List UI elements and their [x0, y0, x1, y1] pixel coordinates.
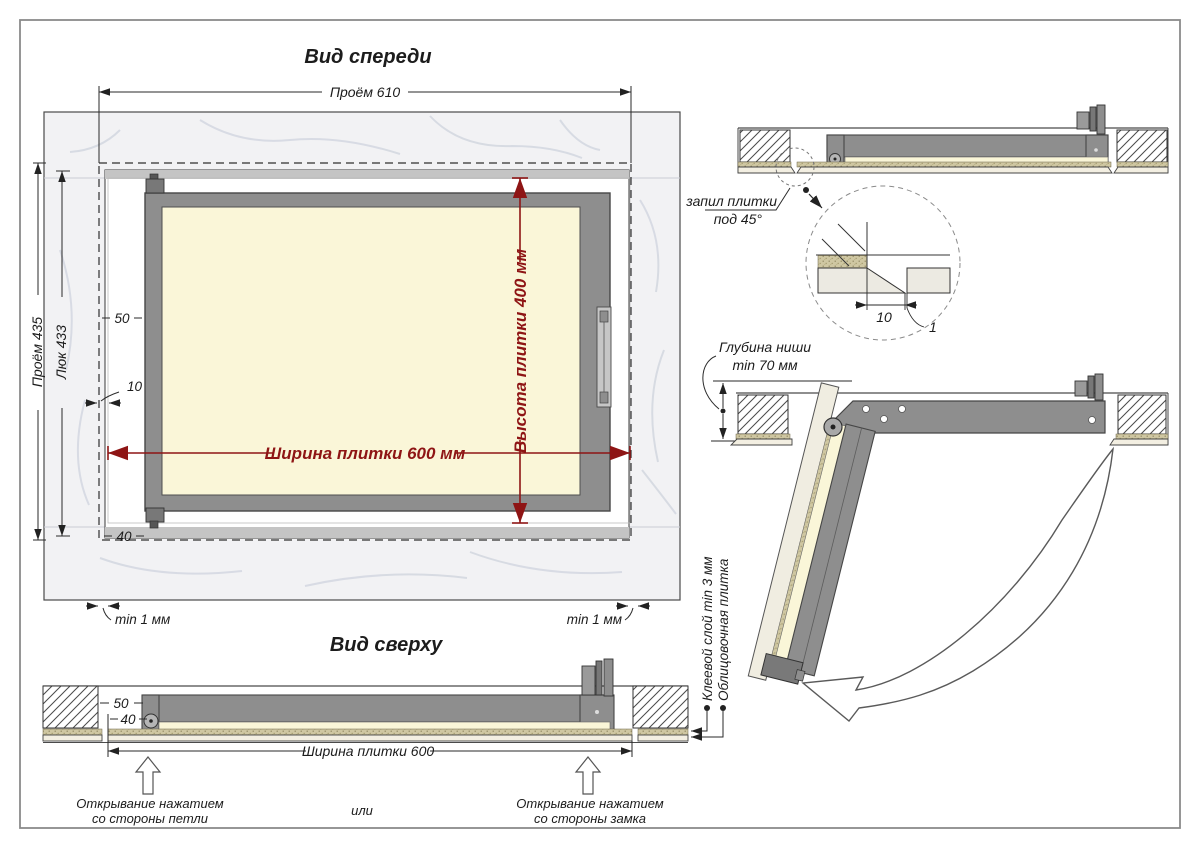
section-tile-layer: [738, 167, 1168, 173]
dim-tile-width-label: Ширина плитки 600 мм: [265, 444, 466, 463]
wall-section-right: [633, 686, 688, 728]
open-lock-icon: [1075, 374, 1103, 400]
door-profile: [143, 695, 613, 722]
open-wall-left: [738, 395, 788, 434]
section-wall-right: [1117, 130, 1167, 162]
tile-cut-label-1: запил плитки: [685, 193, 777, 209]
dim-tile-height-label: Высота плитки 400 мм: [511, 248, 530, 453]
closed-section-view: запил плитки под 45° 10 1: [685, 105, 1168, 340]
open-wall-tile-right: [1110, 439, 1168, 445]
adhesive-layer-label: Клеевой слой min 3 мм: [700, 556, 715, 701]
dim-opening-width-label: Проём 610: [330, 84, 401, 100]
niche-shadow-bottom: [105, 527, 629, 538]
gap-right-label: min 1 мм: [567, 612, 622, 627]
dim-50-label: 50: [114, 311, 130, 326]
niche-depth-label-1: Глубина ниши: [719, 339, 811, 355]
layer-callout-leaders: [691, 711, 723, 737]
front-view: Проём 610 Проём 435 Люк 433 50 10: [29, 46, 680, 627]
dim-opening-height-label: Проём 435: [29, 317, 45, 388]
open-hinge-label-2: со стороны петли: [92, 811, 208, 826]
open-lock-label-1: Открывание нажатием: [516, 796, 664, 811]
open-wall-right: [1118, 395, 1166, 434]
open-hinge-label-1: Открывание нажатием: [76, 796, 224, 811]
top-view-title: Вид сверху: [330, 634, 443, 656]
latch-handle-icon: [597, 307, 611, 407]
dim-10-label: 10: [127, 379, 143, 394]
top-view: Вид сверху 50: [43, 634, 688, 826]
section-adhesive-layer: [738, 162, 1168, 167]
facing-tile-label: Облицовочная плитка: [716, 558, 731, 701]
detail-reference-arrow: [809, 194, 822, 208]
press-open-arrow-right-icon: [576, 757, 600, 794]
section-wall-left: [740, 130, 790, 162]
or-label: или: [351, 803, 373, 818]
lock-mechanism-icon: [580, 659, 614, 730]
niche-depth-leader: [703, 356, 719, 409]
technical-drawing-page: Проём 610 Проём 435 Люк 433 50 10: [0, 0, 1200, 849]
detail-dim-1-label: 1: [929, 319, 937, 335]
detail-dim-10-label: 10: [876, 309, 892, 325]
hatch-installation-drawing: Проём 610 Проём 435 Люк 433 50 10: [0, 0, 1200, 849]
open-lock-label-2: со стороны замка: [534, 811, 646, 826]
hinge-pin-center: [149, 719, 153, 723]
adhesive-layer: [43, 729, 688, 735]
tile-cut-label-2: под 45°: [714, 211, 763, 227]
cut-detail-circle: 10 1: [806, 186, 960, 340]
open-wall-tile-left: [731, 439, 792, 445]
tile-layer: [43, 735, 688, 741]
wall-section-left: [43, 686, 98, 728]
section-door-profile: [827, 135, 1108, 157]
gap-left-label: min 1 мм: [115, 612, 170, 627]
niche-depth-label-2: min 70 мм: [732, 357, 798, 373]
detail-reference-dot: [803, 187, 809, 193]
front-view-title: Вид спереди: [304, 46, 431, 68]
open-section-view: Глубина ниши min 70 мм: [691, 339, 1168, 737]
top-dim-40-label: 40: [120, 712, 136, 727]
top-dim-50-label: 50: [113, 696, 129, 711]
open-frame-bar: [831, 401, 1105, 433]
top-dim-width-label: Ширина плитки 600: [302, 743, 435, 759]
press-open-arrow-left-icon: [136, 757, 160, 794]
dim-40-label: 40: [116, 529, 132, 544]
dim-hatch-height-label: Люк 433: [53, 325, 69, 380]
